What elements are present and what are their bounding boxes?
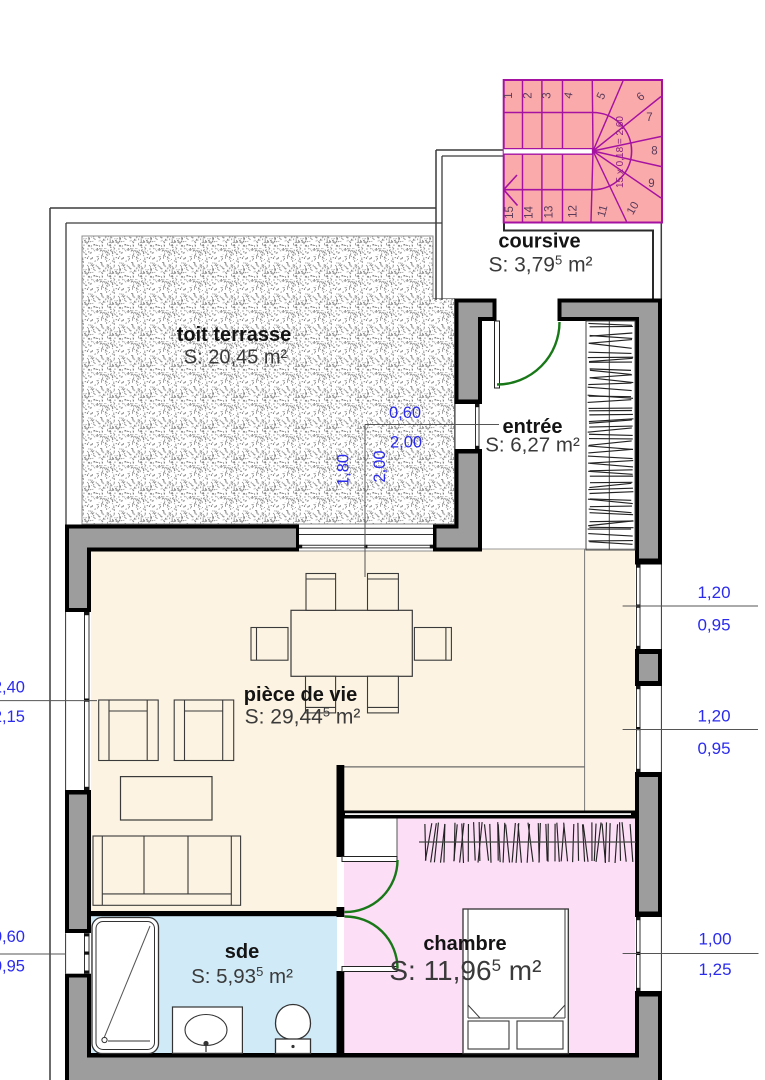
svg-text:3: 3 bbox=[542, 92, 554, 98]
svg-text:0,95: 0,95 bbox=[697, 616, 730, 635]
svg-text:1,00: 1,00 bbox=[698, 930, 731, 949]
svg-text:2,00: 2,00 bbox=[371, 450, 389, 482]
svg-text:15 x 0,18 = 2,60: 15 x 0,18 = 2,60 bbox=[615, 116, 626, 188]
svg-text:2,00: 2,00 bbox=[390, 434, 422, 452]
svg-text:1: 1 bbox=[503, 92, 515, 98]
svg-text:sde: sde bbox=[225, 941, 259, 963]
svg-text:2,40: 2,40 bbox=[0, 679, 25, 697]
svg-text:9: 9 bbox=[648, 178, 654, 190]
svg-text:chambre: chambre bbox=[423, 933, 506, 955]
svg-text:2: 2 bbox=[523, 92, 535, 98]
svg-text:S: 20,45 m²: S: 20,45 m² bbox=[184, 347, 288, 369]
svg-text:0,60: 0,60 bbox=[0, 928, 25, 946]
svg-text:1,80: 1,80 bbox=[335, 454, 353, 486]
svg-text:S: 11,965 m²: S: 11,965 m² bbox=[389, 955, 541, 986]
svg-text:7: 7 bbox=[646, 112, 652, 124]
svg-text:1,25: 1,25 bbox=[698, 960, 731, 979]
svg-text:0,95: 0,95 bbox=[0, 958, 25, 976]
svg-text:8: 8 bbox=[651, 146, 657, 158]
svg-text:S: 29,445 m²: S: 29,445 m² bbox=[245, 705, 361, 729]
svg-text:15: 15 bbox=[504, 206, 516, 219]
svg-text:S: 3,795 m²: S: 3,795 m² bbox=[488, 253, 592, 277]
svg-text:pièce de vie: pièce de vie bbox=[244, 684, 357, 706]
svg-text:12: 12 bbox=[568, 205, 580, 218]
svg-text:2,15: 2,15 bbox=[0, 708, 25, 726]
svg-text:S: 5,935 m²: S: 5,935 m² bbox=[191, 964, 293, 988]
svg-text:0,60: 0,60 bbox=[389, 404, 421, 422]
svg-text:1,20: 1,20 bbox=[697, 583, 730, 602]
svg-text:14: 14 bbox=[524, 206, 536, 219]
svg-text:toit terrasse: toit terrasse bbox=[177, 324, 292, 346]
svg-text:1,20: 1,20 bbox=[697, 707, 730, 726]
svg-text:S: 6,27 m²: S: 6,27 m² bbox=[485, 434, 580, 457]
svg-text:coursive: coursive bbox=[498, 231, 580, 253]
svg-text:0,95: 0,95 bbox=[697, 739, 730, 758]
svg-text:13: 13 bbox=[544, 206, 556, 219]
